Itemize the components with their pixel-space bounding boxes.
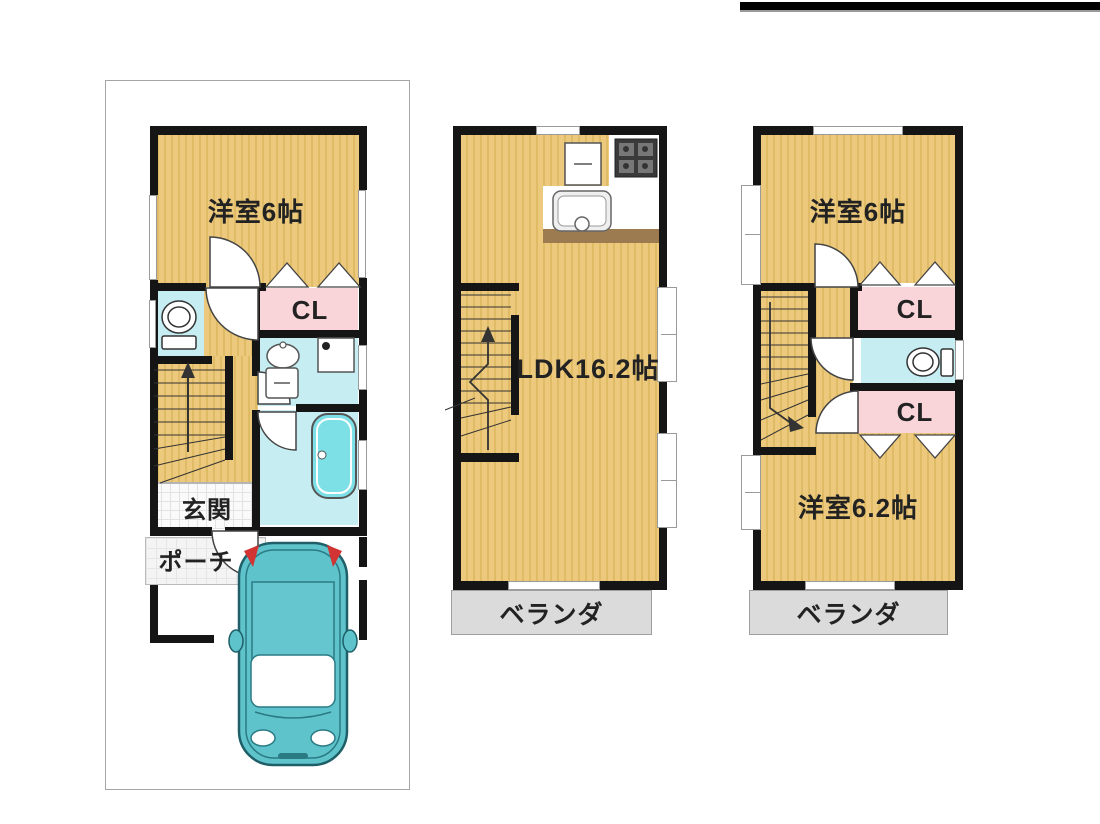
wall-segment: [150, 527, 212, 536]
window-tick: [745, 492, 761, 493]
floor1-bathroom: [258, 410, 358, 525]
wall-segment: [659, 382, 667, 433]
floor1-stairs-hall: [152, 356, 258, 483]
wall-segment: [808, 283, 816, 417]
floor3-stairs-hall: [761, 283, 853, 453]
wall-segment: [150, 283, 206, 291]
wall-segment: [359, 135, 367, 190]
wall-segment: [150, 356, 212, 364]
floor3-veranda: ベランダ: [749, 590, 948, 635]
wall-segment: [225, 356, 233, 460]
floor1-hallway-upper: [204, 288, 258, 356]
window: [805, 581, 895, 590]
wall-segment: [150, 635, 214, 643]
wall-segment: [150, 126, 367, 135]
wall-segment: [753, 135, 761, 185]
wall-segment: [453, 283, 519, 291]
wall-segment: [850, 383, 963, 391]
wall-segment: [850, 391, 858, 433]
floor1-toilet-room: [156, 288, 204, 356]
floor1-washroom: [258, 336, 358, 406]
kitchen-counter: [543, 229, 659, 243]
wall-segment: [600, 581, 667, 590]
room-label-porch: ポーチ: [150, 543, 242, 575]
room-label-closet-1f: CL: [275, 292, 345, 328]
window-tick: [661, 480, 677, 481]
wall-segment: [753, 126, 813, 135]
room-label-bedroom-3f-back: 洋室6.2帖: [768, 488, 948, 524]
bay-window: [741, 185, 761, 285]
floor3-toilet-room: [861, 338, 955, 383]
window-tick: [661, 334, 677, 335]
room-label-entrance: 玄関: [157, 490, 257, 524]
room-label-bedroom-3f-front: 洋室6帖: [768, 192, 948, 228]
window: [149, 300, 156, 348]
wall-segment: [359, 580, 367, 640]
floor2-veranda: ベランダ: [451, 590, 652, 635]
wall-segment: [453, 453, 519, 462]
wall-segment: [359, 537, 367, 567]
floor-plan-canvas: 洋室6帖 CL 玄関 ポーチ ベランダ LDK16.2帖: [0, 0, 1100, 824]
window: [358, 190, 366, 278]
wall-segment: [659, 135, 667, 287]
room-label-ldk: LDK16.2帖: [518, 348, 658, 384]
window: [358, 440, 367, 490]
wall-segment: [252, 330, 367, 338]
window: [149, 195, 157, 280]
wall-segment: [903, 126, 963, 135]
wall-segment: [252, 336, 260, 376]
wall-segment: [580, 126, 667, 135]
wall-segment: [453, 126, 536, 135]
wall-segment: [753, 285, 761, 455]
wall-segment: [753, 581, 805, 590]
entrance-step-edge: [152, 482, 258, 484]
window: [955, 340, 964, 380]
wall-segment: [955, 126, 963, 340]
wall-segment: [850, 287, 858, 330]
wall-segment: [225, 527, 367, 536]
room-label-closet2-3f: CL: [880, 396, 950, 428]
wall-segment: [150, 135, 158, 195]
wall-segment: [453, 581, 508, 590]
wall-segment: [453, 126, 461, 590]
window: [813, 126, 903, 135]
top-rule-bar: [740, 2, 1100, 12]
wall-segment: [252, 288, 260, 336]
room-label-closet1-3f: CL: [880, 293, 950, 325]
wall-segment: [895, 581, 963, 590]
wall-segment: [296, 404, 367, 412]
window: [536, 126, 580, 135]
window-tick: [745, 234, 761, 235]
veranda-label-2f: ベランダ: [499, 595, 603, 631]
window: [508, 581, 600, 590]
wall-segment: [761, 283, 815, 291]
room-label-bedroom-1f: 洋室6帖: [166, 192, 346, 228]
wall-segment: [850, 330, 963, 338]
wall-segment: [761, 447, 816, 455]
veranda-label-3f: ベランダ: [796, 595, 900, 631]
wall-segment: [955, 380, 963, 590]
window: [358, 345, 367, 390]
